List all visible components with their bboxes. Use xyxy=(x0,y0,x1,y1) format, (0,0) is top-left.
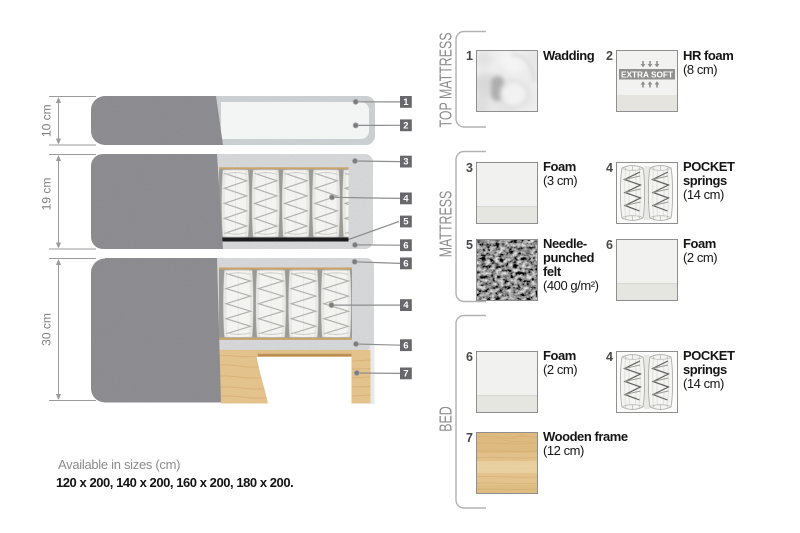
svg-text:19 cm: 19 cm xyxy=(40,178,54,211)
svg-text:2: 2 xyxy=(403,120,408,131)
svg-text:6: 6 xyxy=(403,340,408,351)
svg-text:10 cm: 10 cm xyxy=(40,104,54,137)
svg-text:4: 4 xyxy=(403,194,409,205)
svg-text:4: 4 xyxy=(403,300,409,311)
svg-text:6: 6 xyxy=(403,259,408,270)
svg-text:6: 6 xyxy=(403,240,408,251)
svg-text:30 cm: 30 cm xyxy=(40,313,54,346)
svg-text:EXTRA SOFT: EXTRA SOFT xyxy=(621,70,674,80)
svg-text:7: 7 xyxy=(403,369,408,380)
svg-text:5: 5 xyxy=(403,217,409,228)
svg-text:3: 3 xyxy=(403,157,408,168)
svg-text:1: 1 xyxy=(403,97,409,108)
